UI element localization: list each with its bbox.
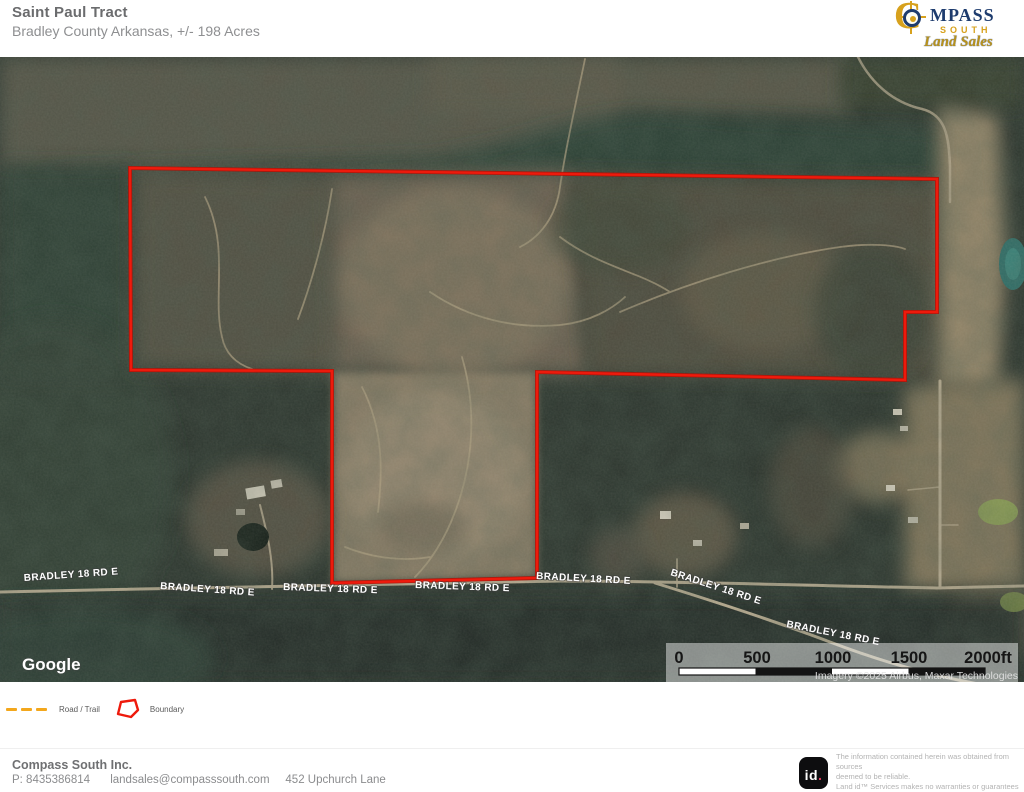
boundary-swatch-icon bbox=[114, 698, 140, 720]
scale-end-label: 2000ft bbox=[964, 649, 1012, 667]
company-name: Compass South Inc. bbox=[12, 758, 132, 772]
legend-road-trail-label: Road / Trail bbox=[59, 705, 100, 714]
disclaimer-line: Land id™ Services makes no warranties or… bbox=[836, 782, 1020, 792]
disclaimer-line: deemed to be reliable. bbox=[836, 772, 1020, 782]
land-id-logo: id. bbox=[799, 757, 828, 789]
disclaimer-line: The information contained herein was obt… bbox=[836, 752, 1020, 772]
scale-tick: 500 bbox=[743, 649, 771, 667]
contact-row: P: 8435386814 landsales@compasssouth.com… bbox=[12, 774, 386, 786]
satellite-map: BRADLEY 18 RD E BRADLEY 18 RD E BRADLEY … bbox=[0, 57, 1024, 682]
logo-script-landsales: Land Sales bbox=[924, 34, 993, 51]
road-trail-swatch bbox=[6, 708, 51, 711]
legend-boundary-label: Boundary bbox=[150, 705, 184, 714]
email-address: landsales@compasssouth.com bbox=[110, 774, 282, 786]
compass-south-logo: C MPASS SOUTH Land Sales bbox=[888, 1, 1016, 55]
compass-center-icon bbox=[910, 16, 916, 22]
imagery-attribution: Imagery ©2025 Airbus, Maxar Technologies bbox=[815, 670, 1018, 682]
scale-tick: 1000 bbox=[815, 649, 852, 667]
phone-number: P: 8435386814 bbox=[12, 774, 107, 786]
satellite-map-canvas: BRADLEY 18 RD E BRADLEY 18 RD E BRADLEY … bbox=[0, 57, 1024, 682]
google-logo: Google bbox=[22, 655, 81, 674]
header: Saint Paul Tract Bradley County Arkansas… bbox=[0, 0, 1024, 57]
flyer-page: Saint Paul Tract Bradley County Arkansas… bbox=[0, 0, 1024, 792]
logo-word-mpass: MPASS bbox=[930, 5, 995, 26]
scale-tick: 0 bbox=[674, 649, 683, 667]
page-subtitle: Bradley County Arkansas, +/- 198 Acres bbox=[12, 23, 260, 39]
disclaimer-text: The information contained herein was obt… bbox=[836, 752, 1020, 792]
page-title: Saint Paul Tract bbox=[12, 4, 128, 21]
legend: Road / Trail Boundary bbox=[6, 701, 198, 717]
scale-tick: 1500 bbox=[891, 649, 928, 667]
street-address: 452 Upchurch Lane bbox=[285, 774, 385, 786]
